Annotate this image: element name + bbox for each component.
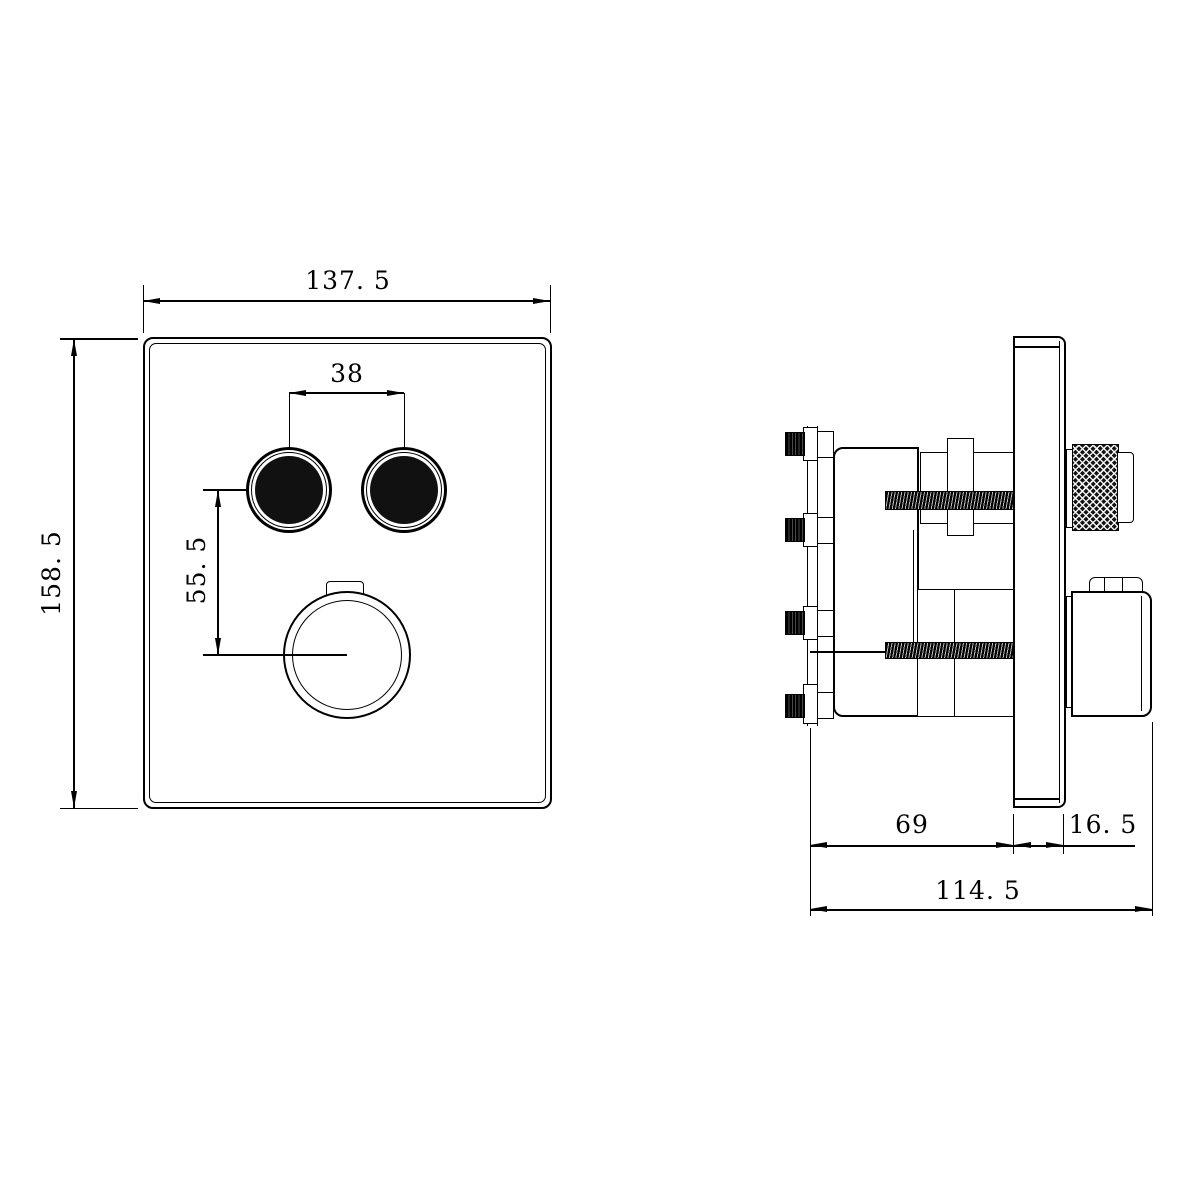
body-line <box>810 651 885 652</box>
threaded-stud <box>785 694 805 718</box>
temp-knob-cap <box>1117 452 1134 523</box>
port-nut <box>817 517 834 544</box>
arrowhead <box>996 842 1013 848</box>
arrowhead <box>810 842 827 848</box>
dimension-line <box>810 909 1152 911</box>
threaded-stud <box>785 432 805 456</box>
threaded-stud <box>785 611 805 635</box>
port-collar <box>803 684 818 724</box>
faceplate-side-inner-line <box>1059 341 1060 803</box>
temp-knob-knurled-grip <box>1072 444 1119 531</box>
port-nut <box>817 431 834 458</box>
volume-knob-tab-line <box>1104 578 1105 592</box>
port-collar <box>803 427 818 461</box>
dimension-label-plate-thickness: 16. 5 <box>1058 812 1148 838</box>
side-view: 69 16. 5 114. 5 <box>0 0 1200 1200</box>
port-collar <box>803 513 818 547</box>
valve-body <box>833 447 919 717</box>
dimension-line <box>810 845 1013 847</box>
cartridge-flange-nut <box>947 438 974 536</box>
dimension-label-total-depth: 114. 5 <box>908 878 1048 904</box>
extension-line <box>810 728 811 916</box>
port-nut <box>817 610 834 637</box>
threaded-stud <box>785 518 805 542</box>
port-nut <box>817 692 834 719</box>
arrowhead <box>1014 842 1031 848</box>
volume-knob-tab-line <box>1122 578 1123 592</box>
arrowhead <box>1135 906 1152 912</box>
arrowhead <box>810 906 827 912</box>
port-collar <box>803 606 818 640</box>
dimension-line <box>1013 845 1135 847</box>
threaded-rod-upper <box>885 491 1014 510</box>
dimension-label-body-depth: 69 <box>872 812 952 838</box>
technical-drawing-shower-valve: 137. 5 158. 5 38 55. 5 <box>0 0 1200 1200</box>
volume-knob-body <box>1071 591 1152 717</box>
body-edge-line <box>913 530 914 642</box>
faceplate-side-chamfer-bottom <box>1015 798 1060 799</box>
threaded-rod-lower <box>885 642 1014 659</box>
extension-line <box>1152 722 1153 916</box>
volume-knob-chamfer-line <box>1141 596 1142 711</box>
faceplate-side-chamfer-top <box>1015 346 1060 347</box>
arrowhead <box>1046 842 1063 848</box>
mounting-bracket <box>807 426 818 726</box>
